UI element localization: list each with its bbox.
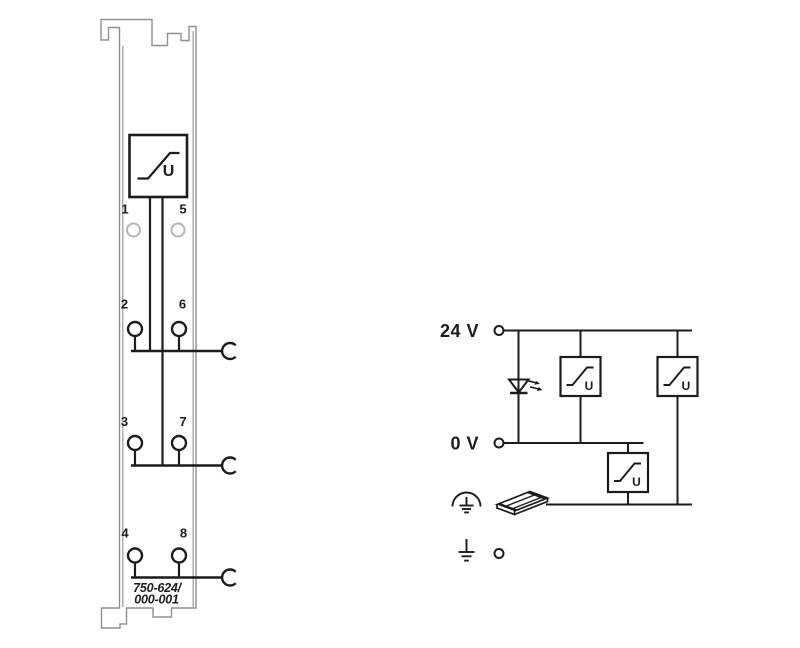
page: U 1 5 2 6 3 7 4 8 7 bbox=[0, 0, 800, 648]
terminal-number-3: 3 bbox=[121, 414, 128, 429]
led-icon bbox=[509, 331, 543, 444]
led-indicator bbox=[172, 224, 185, 237]
shield-ground-icon bbox=[453, 493, 481, 513]
clamp-contact-icon bbox=[222, 343, 236, 586]
led-indicator bbox=[127, 224, 140, 237]
terminal-point-24v bbox=[495, 326, 504, 335]
wiring-schematic: 24 V 0 V U bbox=[440, 321, 698, 561]
rail-0v-label: 0 V bbox=[450, 434, 479, 454]
filter-symbol-label: U bbox=[585, 379, 594, 393]
terminal-number-4: 4 bbox=[121, 526, 129, 541]
terminal-number-5: 5 bbox=[179, 202, 186, 217]
filter-box-icon: U bbox=[658, 357, 698, 396]
terminal-number-7: 7 bbox=[179, 414, 186, 429]
part-number-line2: 000-001 bbox=[134, 593, 179, 607]
terminal-number-8: 8 bbox=[180, 526, 187, 541]
diagram-svg: U 1 5 2 6 3 7 4 8 7 bbox=[0, 0, 800, 648]
rail-24v-label: 24 V bbox=[440, 321, 479, 341]
filter-symbol-label: U bbox=[163, 163, 175, 180]
terminal-number-6: 6 bbox=[179, 297, 186, 312]
terminal-point-0v bbox=[495, 439, 504, 448]
led-emission-arrows bbox=[528, 381, 543, 391]
earth-ground-icon bbox=[459, 539, 475, 561]
terminal-number-1: 1 bbox=[121, 202, 128, 217]
filter-symbol-label: U bbox=[682, 379, 691, 393]
filter-box-icon: U bbox=[561, 357, 601, 396]
contact-stubs bbox=[135, 336, 179, 578]
filter-symbol-label: U bbox=[632, 475, 641, 489]
filter-box-icon: U bbox=[130, 135, 188, 197]
terminal-number-2: 2 bbox=[121, 297, 128, 312]
filter-box-icon: U bbox=[608, 453, 648, 492]
terminal-point-earth bbox=[495, 549, 504, 558]
din-rail-icon bbox=[497, 492, 548, 515]
terminal-contacts bbox=[128, 322, 186, 563]
terminal-bus-lines bbox=[131, 351, 223, 578]
io-module: U 1 5 2 6 3 7 4 8 7 bbox=[101, 20, 236, 629]
